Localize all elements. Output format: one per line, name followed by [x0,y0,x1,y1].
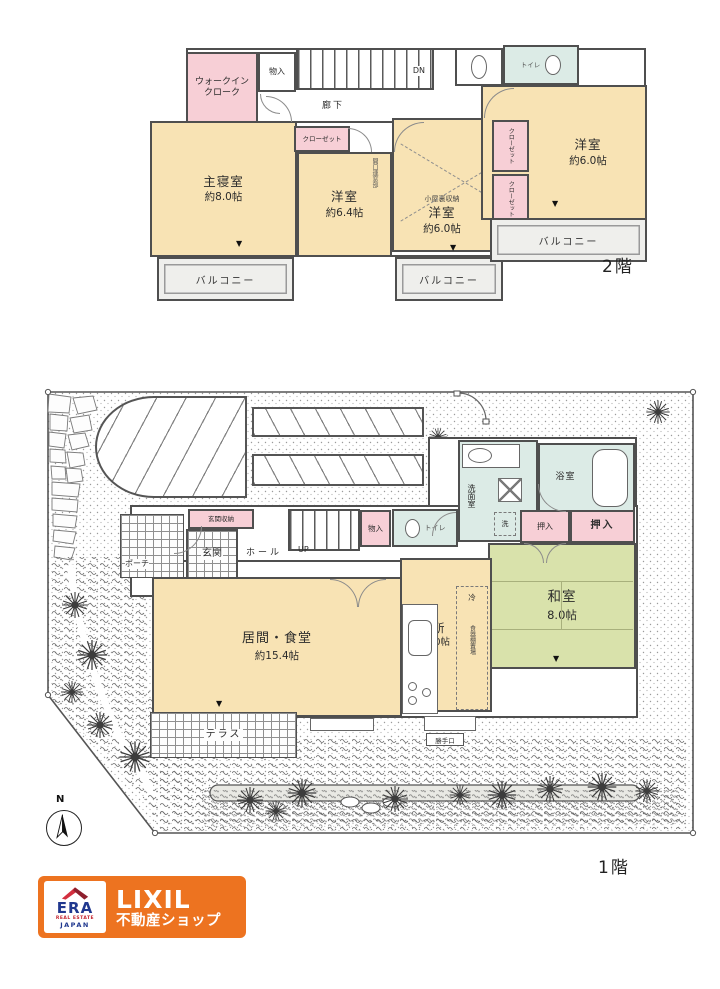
toilet-icon [405,519,420,538]
floor1-label: 1階 [598,853,630,878]
balcony-middle: バルコニー [395,257,503,301]
closet-master-label: クローゼット [303,135,342,143]
living-dining-name: 居間・食堂 [242,631,312,647]
balcony-middle-label: バルコニー [419,272,479,287]
tatami-line [491,629,633,630]
compass-icon [46,810,82,846]
kitchen-sink [408,620,432,656]
carport-roof-2 [252,454,424,486]
closet-vertical-2-label: クローゼット [507,181,515,217]
oshiire-1-label: 押入 [537,522,553,532]
floor2-wall-note: 開口連窓部 [370,158,379,188]
window-marker: ▼ [450,244,456,252]
era-wordmark: ERA [57,901,93,916]
floor2-storage-label: 物入 [269,67,285,77]
driveway-parking [95,396,247,498]
tatami-line [491,581,633,582]
western-room-60-right-name: 洋室 [574,137,601,153]
porch-label: ポーチ [125,559,149,569]
balcony-left: バルコニー [157,257,294,301]
window-marker: ▼ [236,240,242,248]
terrace: テラス [150,712,297,758]
floor1-storage: 物入 [360,510,391,547]
floorplan-page: ウォークインクローク 物入 DN トイレ 廊下 主寝室 約8.0帖 クローゼット… [0,0,720,989]
terrace-label: テラス [204,729,244,742]
step [310,718,374,731]
living-dining-size: 約15.4帖 [255,650,299,663]
balcony-right-label: バルコニー [539,233,599,248]
floor2-toilet: トイレ [503,45,579,85]
walk-in-closet-label: ウォークインクローク [191,77,253,100]
floor2-basin-room [455,48,503,86]
step [424,716,476,731]
walk-in-closet: ウォークインクローク [186,52,258,124]
era-logo-box: ERA REAL ESTATE JAPAN [44,881,106,933]
closet-vertical-1: クローゼット [492,120,529,172]
window-marker: ▼ [216,700,222,708]
window-marker: ▼ [552,200,558,208]
floor2-storage: 物入 [258,52,296,92]
floor2-toilet-label: トイレ [521,61,541,69]
vanity-basin [468,448,492,463]
hall-label: ホール [246,545,282,558]
western-room-60-mid-name: 洋室 [428,205,455,221]
closet-vertical-1-label: クローゼット [507,128,515,164]
western-room-60-right-size: 約6.0帖 [569,155,607,168]
era-japan-label: JAPAN [60,922,90,929]
western-room-60-mid-size: 約6.0帖 [423,223,461,236]
washroom-hatch [498,478,522,502]
master-bedroom-name: 主寝室 [203,174,244,190]
bathroom-label: 浴室 [555,472,575,483]
western-room-64-name: 洋室 [331,189,358,205]
closet-vertical-2: クローゼット [492,174,529,224]
entrance-storage-label: 玄関収納 [208,515,234,523]
floor1-storage-label: 物入 [368,524,383,533]
back-door-label: 勝手口 [435,735,455,745]
stairs-down-label: DN [412,66,426,76]
oshiire-2-label: 押入 [591,520,615,533]
washer-label: 洗 [502,519,509,529]
lixil-wordmark-block: LIXIL 不動産ショップ [116,883,242,933]
stove-burner [422,688,431,697]
washbasin-icon [471,55,487,79]
carport-roof-1 [252,407,424,437]
stove-burner [408,696,417,705]
floor2-label: 2階 [602,252,634,277]
master-bedroom: 主寝室 約8.0帖 [150,121,297,257]
cupboard-label: 食器棚置場 [468,625,477,655]
japanese-room-name: 和室 [548,589,577,606]
lixil-era-logo: ERA REAL ESTATE JAPAN LIXIL 不動産ショップ [38,876,246,938]
corridor-label: 廊下 [322,98,344,111]
oshiire-2: 押入 [570,510,635,543]
toilet-icon [545,55,561,75]
washer-space: 洗 [494,512,516,536]
tatami-line [561,581,562,629]
washroom-label: 洗面室 [466,484,477,508]
bathtub-icon [592,449,628,507]
fridge-cupboard-space: 冷 食器棚置場 [456,586,488,710]
lixil-wordmark: LIXIL [116,886,242,914]
back-door-tag: 勝手口 [426,733,464,746]
entrance-label: 玄関 [201,548,223,561]
fridge-label: 冷 [468,592,476,603]
oshiire-1: 押入 [520,510,570,543]
western-room-64-size: 約6.4帖 [326,207,364,220]
window-marker: ▼ [553,655,559,663]
stove-burner [408,682,417,691]
balcony-left-label: バルコニー [196,272,256,287]
closet-master: クローゼット [294,126,350,152]
master-bedroom-size: 約8.0帖 [205,191,243,204]
lixil-shop-label: 不動産ショップ [116,914,242,930]
floor2-stairs: DN [296,48,434,90]
stairs-up-label: UP [298,545,309,554]
compass-north-label: N [56,794,64,805]
